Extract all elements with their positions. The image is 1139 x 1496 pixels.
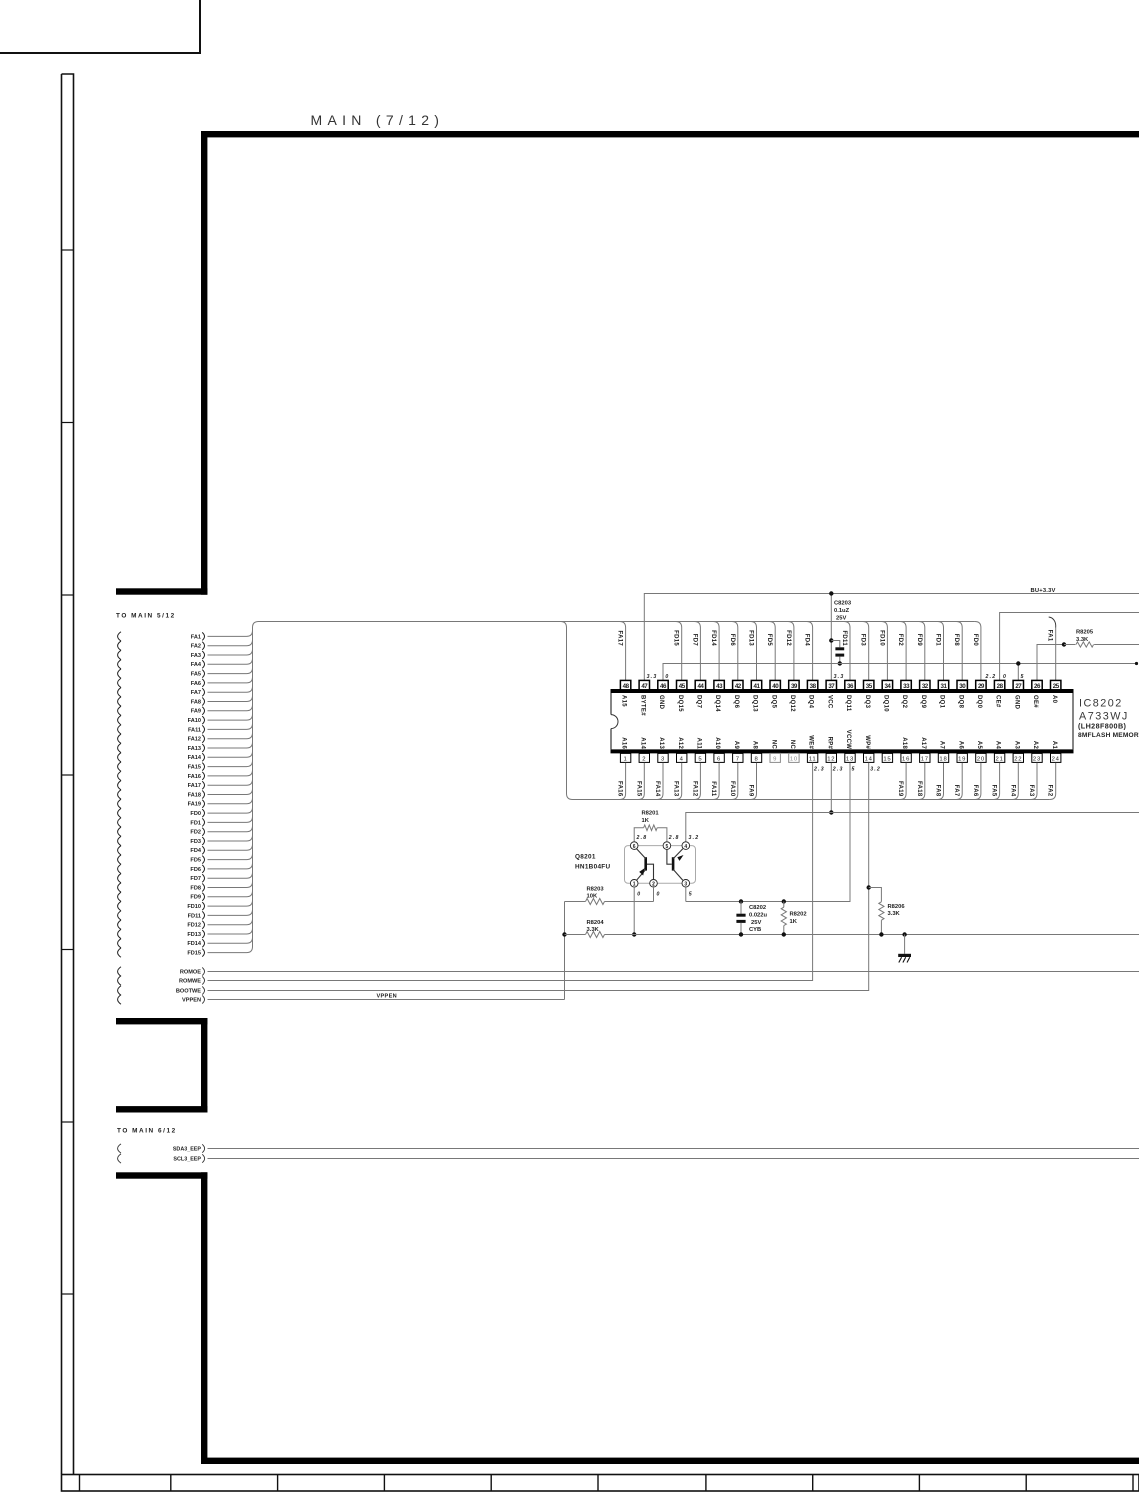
svg-text:FD8: FD8 [953, 634, 959, 647]
svg-text:FD4: FD4 [190, 848, 201, 854]
svg-text:6: 6 [717, 757, 721, 763]
svg-text:Q8201: Q8201 [575, 854, 596, 861]
svg-text:13: 13 [846, 757, 854, 763]
svg-text:A7: A7 [939, 741, 945, 750]
svg-text:FA11: FA11 [188, 727, 201, 733]
svg-text:FD5: FD5 [190, 858, 201, 864]
svg-text:FD4: FD4 [804, 634, 810, 647]
svg-text:IC8202: IC8202 [1079, 698, 1123, 710]
svg-text:VCC: VCC [826, 695, 832, 709]
svg-text:FA7: FA7 [953, 785, 959, 797]
svg-text:SDA3_EEP: SDA3_EEP [173, 1146, 202, 1152]
svg-text:23: 23 [1033, 757, 1041, 763]
svg-text:FD10: FD10 [878, 630, 884, 646]
svg-text:FA3: FA3 [191, 653, 201, 659]
svg-text:4: 4 [680, 757, 684, 763]
svg-text:DQ12: DQ12 [789, 695, 795, 712]
svg-text:TO MAIN 6/12: TO MAIN 6/12 [117, 1127, 177, 1134]
svg-text:0: 0 [657, 891, 661, 897]
svg-text:R8203: R8203 [587, 886, 605, 892]
svg-text:DQ7: DQ7 [696, 695, 702, 709]
svg-text:DQ0: DQ0 [976, 695, 982, 709]
svg-text:A3: A3 [1013, 741, 1019, 750]
svg-text:14: 14 [865, 757, 873, 763]
svg-text:A12: A12 [677, 737, 683, 749]
svg-text:10: 10 [790, 757, 798, 763]
svg-text:2.3: 2.3 [832, 767, 844, 773]
svg-text:FA8: FA8 [935, 785, 941, 797]
svg-text:0.022u: 0.022u [749, 912, 768, 918]
svg-text:DQ8: DQ8 [957, 695, 963, 709]
svg-text:VPPEN: VPPEN [182, 997, 201, 1003]
svg-text:0.1uZ: 0.1uZ [834, 608, 850, 614]
svg-text:FA4: FA4 [1009, 785, 1015, 797]
svg-text:35: 35 [866, 683, 873, 690]
svg-text:A2: A2 [1032, 741, 1038, 750]
svg-text:6: 6 [633, 844, 636, 850]
svg-text:DQ4: DQ4 [808, 695, 814, 709]
svg-text:FD3: FD3 [860, 634, 866, 647]
svg-text:A18: A18 [901, 737, 907, 749]
svg-text:FD5: FD5 [766, 634, 772, 647]
svg-text:C8202: C8202 [749, 905, 766, 911]
svg-text:FD6: FD6 [190, 867, 201, 873]
svg-text:24: 24 [1052, 757, 1060, 763]
svg-text:25V: 25V [836, 615, 846, 621]
svg-text:FD0: FD0 [190, 811, 201, 817]
svg-text:FA2: FA2 [1047, 785, 1053, 797]
svg-text:A0: A0 [1051, 695, 1057, 704]
svg-text:A16: A16 [621, 737, 627, 749]
svg-text:FD6: FD6 [729, 634, 735, 647]
svg-text:FD7: FD7 [691, 634, 697, 647]
svg-text:FD8: FD8 [190, 885, 201, 891]
svg-text:A11: A11 [696, 738, 702, 750]
svg-text:FA12: FA12 [188, 737, 201, 743]
svg-text:NC: NC [789, 740, 795, 750]
svg-text:2.2: 2.2 [985, 674, 997, 680]
svg-text:A1: A1 [1051, 741, 1057, 750]
svg-text:DQ3: DQ3 [864, 695, 870, 709]
svg-text:2: 2 [642, 757, 646, 763]
svg-text:FD10: FD10 [187, 904, 201, 910]
svg-text:A15: A15 [621, 695, 627, 707]
svg-text:HN1B04FU: HN1B04FU [575, 864, 611, 871]
svg-text:R8205: R8205 [1076, 630, 1094, 636]
svg-text:WE#: WE# [808, 735, 814, 749]
svg-text:44: 44 [697, 683, 704, 690]
svg-text:FA16: FA16 [617, 781, 623, 797]
svg-text:FA15: FA15 [635, 781, 641, 797]
svg-text:40: 40 [772, 683, 779, 690]
svg-text:2.3: 2.3 [813, 767, 825, 773]
svg-text:C8203: C8203 [834, 600, 852, 606]
svg-text:5: 5 [689, 891, 693, 897]
svg-text:R8204: R8204 [587, 920, 605, 926]
svg-text:DQ6: DQ6 [733, 695, 739, 709]
svg-text:FA3: FA3 [1028, 785, 1034, 797]
svg-text:0: 0 [637, 891, 641, 897]
svg-text:FA1: FA1 [191, 634, 201, 640]
svg-text:2.8: 2.8 [636, 835, 648, 841]
svg-text:FA1: FA1 [1047, 630, 1053, 642]
svg-text:SCL3_EEP: SCL3_EEP [173, 1156, 201, 1162]
svg-text:1K: 1K [790, 919, 798, 925]
svg-text:DQ1: DQ1 [939, 695, 945, 709]
svg-text:CYB: CYB [749, 927, 761, 933]
svg-text:A6: A6 [957, 741, 963, 750]
svg-text:DQ14: DQ14 [714, 695, 720, 712]
svg-text:3.3K: 3.3K [1076, 637, 1089, 643]
svg-text:12: 12 [827, 757, 835, 763]
svg-text:7: 7 [736, 757, 740, 763]
svg-text:10K: 10K [587, 893, 598, 899]
svg-text:FA16: FA16 [188, 774, 201, 780]
svg-text:FA5: FA5 [191, 672, 201, 678]
svg-text:(LH28F800B): (LH28F800B) [1078, 722, 1127, 731]
svg-text:R8202: R8202 [790, 912, 807, 918]
svg-text:16: 16 [902, 757, 910, 763]
svg-text:FA12: FA12 [691, 781, 697, 797]
svg-text:4: 4 [684, 844, 687, 850]
svg-text:A4: A4 [995, 741, 1001, 750]
svg-text:FD15: FD15 [187, 951, 201, 957]
svg-text:22: 22 [1014, 757, 1022, 763]
svg-text:FA5: FA5 [991, 785, 997, 797]
svg-text:TO MAIN 5/12: TO MAIN 5/12 [116, 613, 176, 620]
svg-text:FA10: FA10 [729, 781, 735, 797]
svg-text:FD1: FD1 [935, 634, 941, 647]
svg-text:WP#: WP# [864, 735, 870, 749]
svg-text:FA14: FA14 [188, 755, 202, 761]
svg-text:FA9: FA9 [748, 785, 754, 797]
svg-text:FD12: FD12 [785, 630, 791, 646]
svg-text:BOOTWE: BOOTWE [176, 988, 201, 994]
svg-text:5: 5 [666, 844, 669, 850]
svg-text:30: 30 [959, 683, 966, 690]
svg-text:DQ10: DQ10 [883, 695, 889, 712]
svg-text:ROMWE: ROMWE [179, 978, 201, 984]
svg-text:FD15: FD15 [673, 630, 679, 646]
svg-text:FD13: FD13 [748, 630, 754, 646]
svg-text:3.3: 3.3 [834, 674, 845, 680]
svg-text:GND: GND [658, 695, 664, 710]
svg-text:FD9: FD9 [190, 895, 201, 901]
svg-text:17: 17 [921, 757, 929, 763]
svg-text:8MFLASH MEMORY: 8MFLASH MEMORY [1078, 732, 1139, 739]
svg-text:FA18: FA18 [916, 781, 922, 797]
svg-text:FA19: FA19 [897, 781, 903, 797]
svg-text:11: 11 [809, 757, 817, 763]
svg-text:DQ13: DQ13 [752, 695, 758, 712]
svg-text:FD13: FD13 [187, 932, 201, 938]
svg-text:FA9: FA9 [191, 709, 201, 715]
svg-text:BU+3.3V: BU+3.3V [1031, 588, 1056, 594]
svg-text:FD0: FD0 [972, 634, 978, 647]
svg-text:3.3: 3.3 [647, 674, 658, 680]
svg-text:FD14: FD14 [187, 941, 202, 947]
svg-text:FD7: FD7 [190, 876, 201, 882]
svg-text:FA2: FA2 [191, 644, 201, 650]
svg-text:FD1: FD1 [190, 820, 201, 826]
svg-text:NC: NC [770, 740, 776, 750]
svg-text:RP#: RP# [826, 737, 832, 750]
svg-text:3.2: 3.2 [689, 835, 700, 841]
svg-text:2.8: 2.8 [668, 835, 680, 841]
svg-text:18: 18 [939, 757, 947, 763]
svg-text:3: 3 [661, 757, 665, 763]
svg-text:34: 34 [884, 683, 891, 690]
svg-text:A14: A14 [639, 737, 645, 749]
svg-text:FA6: FA6 [191, 681, 201, 687]
svg-text:0: 0 [1003, 674, 1007, 680]
svg-text:FA18: FA18 [188, 792, 201, 798]
svg-text:CE#: CE# [995, 695, 1001, 708]
svg-text:FA13: FA13 [673, 781, 679, 797]
svg-text:VPPEN: VPPEN [377, 993, 397, 999]
svg-text:FA8: FA8 [191, 699, 201, 705]
svg-text:A17: A17 [920, 737, 926, 749]
svg-text:A5: A5 [976, 741, 982, 750]
svg-text:FD3: FD3 [190, 839, 201, 845]
svg-text:21: 21 [996, 757, 1004, 763]
svg-text:FA4: FA4 [191, 662, 202, 668]
svg-text:FD2: FD2 [897, 634, 903, 647]
svg-text:FA10: FA10 [188, 718, 201, 724]
svg-text:A9: A9 [733, 741, 739, 750]
svg-text:FA15: FA15 [188, 765, 201, 771]
svg-text:DQ11: DQ11 [845, 695, 851, 712]
svg-text:FA19: FA19 [188, 802, 201, 808]
svg-text:FA17: FA17 [617, 630, 623, 646]
svg-text:8: 8 [754, 757, 758, 763]
svg-text:DQ15: DQ15 [677, 695, 683, 712]
svg-text:R8206: R8206 [888, 904, 906, 910]
svg-text:ROMOE: ROMOE [180, 969, 201, 975]
svg-text:FA7: FA7 [191, 690, 201, 696]
svg-text:DQ9: DQ9 [920, 695, 926, 709]
svg-text:FA6: FA6 [972, 785, 978, 797]
svg-text:19: 19 [958, 757, 966, 763]
svg-text:3.3K: 3.3K [888, 911, 901, 917]
svg-text:39: 39 [791, 683, 798, 690]
svg-text:9: 9 [773, 757, 777, 763]
svg-text:29: 29 [978, 683, 985, 690]
svg-text:1: 1 [633, 882, 636, 888]
svg-text:25V: 25V [751, 920, 761, 926]
svg-text:VCCW: VCCW [845, 730, 851, 750]
svg-text:FD11: FD11 [841, 630, 847, 646]
svg-text:1: 1 [624, 757, 628, 763]
svg-text:FA13: FA13 [188, 746, 201, 752]
svg-text:FD9: FD9 [916, 634, 922, 647]
svg-text:FD14: FD14 [710, 630, 716, 646]
svg-text:3.2: 3.2 [870, 767, 881, 773]
svg-text:R8201: R8201 [642, 811, 660, 817]
svg-text:3: 3 [684, 882, 687, 888]
svg-text:20: 20 [977, 757, 985, 763]
svg-text:15: 15 [883, 757, 891, 763]
svg-text:A10: A10 [714, 737, 720, 749]
svg-text:FD11: FD11 [188, 913, 201, 919]
svg-text:FD2: FD2 [190, 830, 201, 836]
svg-text:45: 45 [679, 683, 686, 690]
svg-text:GND: GND [1013, 695, 1019, 710]
svg-text:DQ2: DQ2 [901, 695, 907, 709]
svg-text:DQ5: DQ5 [770, 695, 776, 709]
svg-text:BYTE#: BYTE# [639, 695, 645, 716]
svg-text:FD12: FD12 [187, 923, 201, 929]
svg-text:FA14: FA14 [654, 781, 660, 797]
svg-text:FA17: FA17 [188, 783, 201, 789]
svg-text:5: 5 [1021, 674, 1025, 680]
svg-text:1K: 1K [642, 818, 650, 824]
svg-text:A8: A8 [752, 741, 758, 750]
svg-text:A13: A13 [658, 737, 664, 749]
svg-text:OE#: OE# [1032, 695, 1038, 708]
svg-text:0: 0 [665, 674, 669, 680]
svg-text:FA11: FA11 [710, 781, 716, 797]
svg-text:5: 5 [852, 767, 856, 773]
svg-text:5: 5 [698, 757, 702, 763]
svg-text:MAIN (7/12): MAIN (7/12) [311, 112, 445, 128]
svg-text:25: 25 [1053, 683, 1060, 690]
